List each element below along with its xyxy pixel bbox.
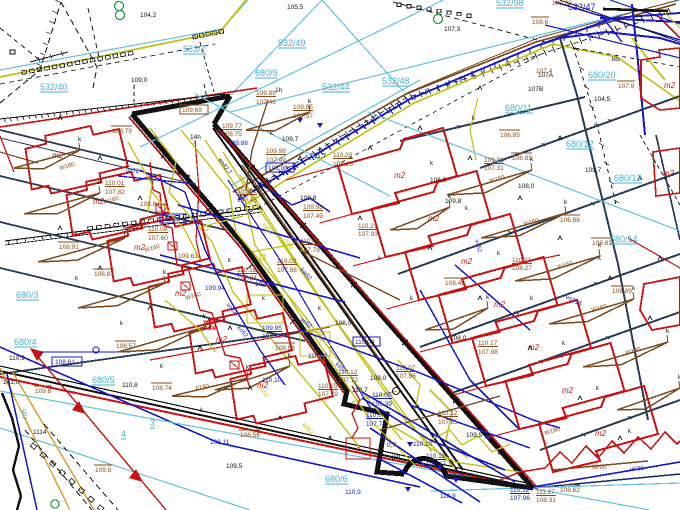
- svg-text:680/12: 680/12: [566, 139, 594, 149]
- svg-text:m2: m2: [664, 81, 676, 90]
- svg-text:107.9: 107.9: [618, 83, 635, 90]
- svg-text:109.96: 109.96: [484, 157, 504, 164]
- svg-text:532/48: 532/48: [382, 76, 410, 86]
- svg-text:107.93: 107.93: [358, 231, 378, 238]
- svg-text:109.94: 109.94: [205, 285, 225, 292]
- svg-text:108.62: 108.62: [560, 487, 580, 494]
- svg-text:109.77: 109.77: [222, 123, 242, 130]
- svg-text:110.05: 110.05: [372, 392, 392, 399]
- svg-text:107.72: 107.72: [338, 377, 358, 384]
- svg-text:107.85: 107.85: [438, 419, 458, 426]
- svg-text:108.57: 108.57: [116, 343, 136, 350]
- svg-text:110.20: 110.20: [333, 152, 353, 159]
- svg-text:M/90: M/90: [592, 464, 607, 471]
- svg-text:108,0: 108,0: [450, 335, 467, 342]
- svg-text:680/13: 680/13: [614, 173, 642, 183]
- svg-text:110 11: 110 11: [446, 473, 465, 480]
- svg-text:108.26: 108.26: [333, 161, 353, 168]
- svg-text:110.15: 110.15: [318, 383, 338, 390]
- svg-text:110.02: 110.02: [308, 353, 328, 360]
- svg-text:108.81: 108.81: [592, 240, 612, 247]
- svg-text:110.02: 110.02: [277, 258, 297, 265]
- svg-text:5: 5: [22, 408, 27, 418]
- svg-text:0,7: 0,7: [387, 442, 396, 449]
- svg-text:e: e: [356, 446, 360, 453]
- svg-text:110.11: 110.11: [426, 453, 445, 460]
- svg-text:109.92: 109.92: [237, 188, 257, 195]
- svg-text:108.74: 108.74: [152, 385, 172, 392]
- svg-text:108,0: 108,0: [335, 320, 352, 327]
- svg-text:109,8: 109,8: [445, 198, 462, 205]
- svg-text:110.9: 110.9: [440, 493, 456, 500]
- svg-text:108,0: 108,0: [370, 375, 387, 382]
- svg-text:1114: 1114: [33, 429, 47, 436]
- svg-text:111.27: 111.27: [536, 489, 555, 496]
- svg-text:108.6: 108.6: [532, 19, 549, 26]
- svg-text:106.88: 106.88: [560, 217, 580, 224]
- svg-text:109.98: 109.98: [303, 204, 323, 211]
- svg-text:108.91: 108.91: [59, 244, 79, 251]
- svg-text:m2: m2: [562, 386, 574, 395]
- svg-text:104,2: 104,2: [140, 12, 157, 19]
- svg-text:109.95: 109.95: [293, 104, 313, 111]
- svg-text:680/20: 680/20: [588, 70, 616, 80]
- svg-text:109,5: 109,5: [226, 463, 243, 470]
- svg-text:532/49: 532/49: [278, 38, 306, 48]
- svg-text:107.73: 107.73: [262, 333, 282, 340]
- svg-text:m2: m2: [528, 343, 540, 352]
- svg-text:106,0: 106,0: [430, 177, 447, 184]
- svg-text:3: 3: [150, 418, 155, 428]
- svg-text:110,9: 110,9: [9, 355, 25, 362]
- svg-text:110.12: 110.12: [510, 487, 530, 494]
- svg-text:105.83: 105.83: [552, 0, 572, 7]
- svg-text:108.81: 108.81: [140, 201, 160, 208]
- svg-text:110.18: 110.18: [237, 267, 257, 274]
- svg-text:680/6: 680/6: [325, 474, 348, 484]
- svg-text:108.27: 108.27: [512, 265, 532, 272]
- svg-text:109,7: 109,7: [282, 136, 299, 143]
- svg-text:110.07: 110.07: [396, 365, 416, 372]
- svg-text:107.46: 107.46: [256, 99, 276, 106]
- svg-text:m2: m2: [394, 171, 406, 180]
- svg-text:107.60: 107.60: [148, 235, 168, 242]
- svg-text:107,4: 107,4: [536, 68, 553, 75]
- svg-text:680/9: 680/9: [255, 68, 278, 78]
- svg-text:108.87: 108.87: [94, 271, 114, 278]
- svg-text:110.01: 110.01: [105, 180, 125, 187]
- svg-text:108.61: 108.61: [55, 359, 75, 366]
- svg-text:109.69: 109.69: [182, 107, 202, 114]
- svg-text:680/4: 680/4: [14, 337, 37, 347]
- svg-text:109,7: 109,7: [585, 167, 602, 174]
- svg-text:108.79: 108.79: [112, 128, 132, 135]
- svg-text:110.12: 110.12: [438, 410, 458, 417]
- svg-text:108.31: 108.31: [536, 497, 556, 504]
- svg-text:108.11: 108.11: [210, 439, 230, 446]
- svg-text:vo72: vo72: [126, 169, 140, 175]
- svg-text:kb.: kb.: [612, 56, 621, 63]
- svg-text:110.03: 110.03: [355, 339, 375, 346]
- svg-text:109,5: 109,5: [466, 432, 483, 439]
- svg-text:108.56: 108.56: [275, 345, 295, 352]
- svg-text:jkh.: jkh.: [391, 454, 402, 461]
- svg-text:109,0: 109,0: [131, 77, 148, 84]
- svg-text:109.89: 109.89: [256, 90, 276, 97]
- svg-text:110.21: 110.21: [358, 223, 378, 230]
- svg-text:109.88: 109.88: [228, 140, 248, 147]
- svg-text:110.10: 110.10: [413, 441, 433, 448]
- svg-text:680/3: 680/3: [16, 290, 39, 300]
- svg-text:109.8: 109.8: [35, 388, 52, 395]
- svg-text:14h: 14h: [190, 134, 201, 141]
- svg-text:533/2: 533/2: [183, 44, 206, 54]
- svg-text:109,8: 109,8: [300, 195, 317, 202]
- svg-text:107,3: 107,3: [444, 26, 461, 33]
- svg-text:680/14: 680/14: [610, 234, 638, 244]
- svg-text:107B: 107B: [528, 86, 543, 93]
- svg-text:107.98: 107.98: [478, 349, 498, 356]
- svg-text:107.78: 107.78: [300, 247, 320, 254]
- svg-text:109.95: 109.95: [262, 325, 282, 332]
- svg-text:110.17: 110.17: [478, 340, 498, 347]
- svg-text:110,7: 110,7: [352, 387, 368, 394]
- svg-text:110.05: 110.05: [300, 238, 320, 245]
- svg-text:108.17: 108.17: [426, 461, 446, 468]
- svg-text:108.83: 108.83: [512, 155, 532, 162]
- svg-text:108.49: 108.49: [445, 280, 465, 287]
- svg-text:107.31: 107.31: [484, 165, 504, 172]
- svg-text:106.85: 106.85: [500, 132, 520, 139]
- svg-text:107.82: 107.82: [105, 189, 125, 196]
- svg-text:107.96: 107.96: [510, 495, 530, 502]
- svg-text:141,0: 141,0: [3, 379, 20, 386]
- svg-text:104,5: 104,5: [594, 96, 611, 103]
- svg-text:110,9: 110,9: [345, 489, 361, 496]
- svg-text:109.94: 109.94: [255, 281, 275, 288]
- svg-text:108,0: 108,0: [518, 183, 535, 190]
- svg-text:108.89: 108.89: [612, 288, 632, 295]
- svg-text:107.79: 107.79: [318, 391, 338, 398]
- svg-text:680/5: 680/5: [92, 375, 115, 385]
- svg-text:1h: 1h: [275, 87, 283, 94]
- svg-text:109.61: 109.61: [178, 253, 198, 260]
- svg-text:m2: m2: [595, 429, 607, 438]
- svg-text:108.00: 108.00: [268, 165, 288, 172]
- svg-text:109.98: 109.98: [266, 148, 286, 155]
- svg-text:532/40: 532/40: [40, 82, 68, 92]
- svg-text:532/98: 532/98: [496, 0, 524, 8]
- svg-text:107.37: 107.37: [293, 113, 313, 120]
- svg-text:105.39: 105.39: [372, 401, 392, 408]
- svg-text:107.49: 107.49: [303, 213, 323, 220]
- svg-text:m2: m2: [461, 257, 473, 266]
- svg-text:680/11: 680/11: [505, 103, 532, 113]
- svg-text:m2: m2: [663, 169, 675, 178]
- svg-text:vo36: vo36: [630, 465, 645, 473]
- svg-text:110.10: 110.10: [262, 377, 282, 384]
- svg-text:532/47: 532/47: [568, 2, 596, 12]
- svg-text:m2: m2: [494, 300, 506, 309]
- svg-text:110.0: 110.0: [366, 412, 382, 419]
- svg-text:107.7: 107.7: [366, 421, 383, 428]
- svg-text:107.88: 107.88: [277, 267, 297, 274]
- svg-text:108.56: 108.56: [240, 432, 260, 439]
- svg-text:4: 4: [121, 429, 126, 439]
- svg-text:107.86: 107.86: [396, 373, 416, 380]
- svg-text:105,5: 105,5: [287, 4, 304, 11]
- svg-text:108.75: 108.75: [222, 131, 242, 138]
- svg-text:110,8: 110,8: [122, 382, 138, 389]
- svg-text:110.09: 110.09: [148, 226, 168, 233]
- svg-text:109.8: 109.8: [95, 467, 112, 474]
- svg-text:110.21: 110.21: [512, 257, 532, 264]
- svg-text:532/44: 532/44: [322, 82, 350, 92]
- svg-text:11,7: 11,7: [314, 153, 327, 160]
